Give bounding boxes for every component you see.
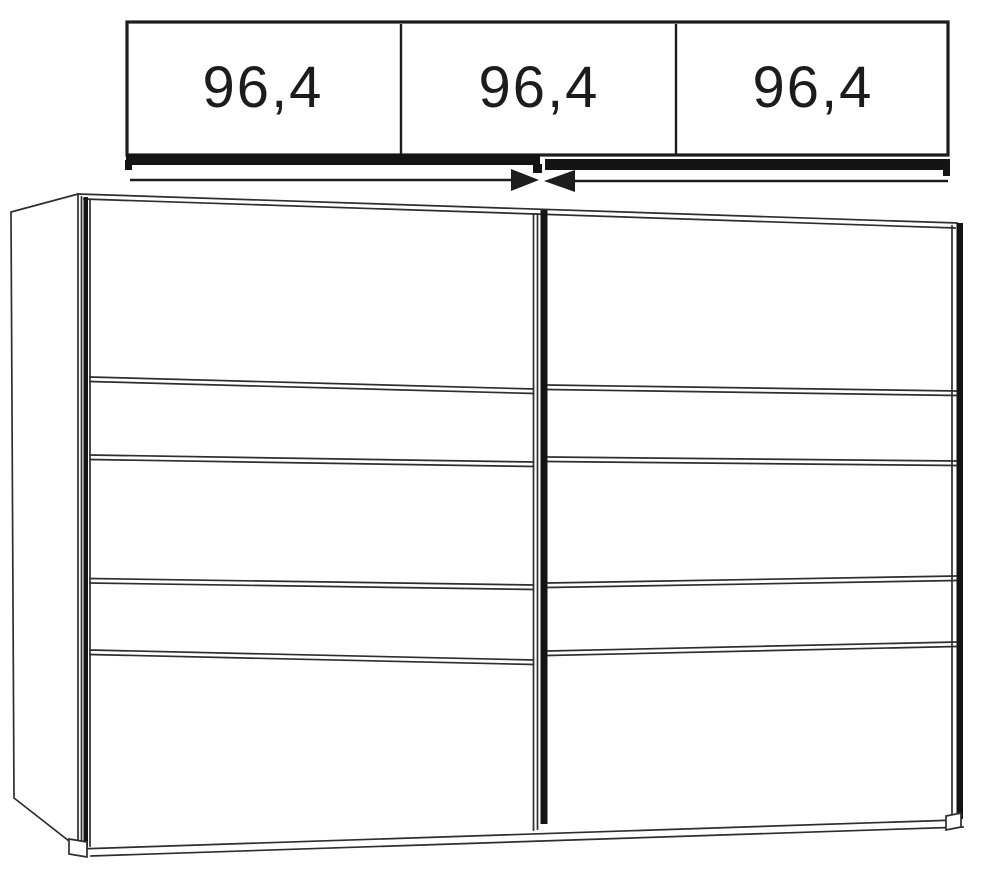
wardrobe-top-edge	[78, 194, 957, 228]
track-bar-junction-dot	[533, 164, 542, 173]
dimension-label-left: 96,4	[203, 59, 324, 117]
arrow-left-icon	[544, 170, 948, 192]
dimension-label-middle: 96,4	[479, 59, 600, 117]
track-bar-left-end-nub	[125, 160, 132, 170]
arrow-right-icon	[130, 169, 539, 191]
wardrobe-right-door	[541, 210, 964, 824]
left-foot	[69, 839, 87, 857]
track-bar-right	[545, 159, 950, 170]
left-door-handle-profile	[84, 197, 89, 847]
right-door-left-handle-profile	[541, 210, 548, 824]
track-bar-left	[126, 154, 540, 165]
right-foot	[946, 813, 961, 830]
wardrobe-left-door	[84, 197, 538, 847]
wardrobe-dimension-diagram: 96,4 96,4 96,4	[0, 0, 983, 875]
diagram-artwork	[0, 0, 983, 875]
dimension-label-right: 96,4	[753, 59, 874, 117]
wardrobe-side-panel	[11, 194, 82, 848]
wardrobe-base	[78, 820, 963, 856]
door-track-bars	[125, 154, 950, 176]
right-door-right-handle-profile	[957, 223, 964, 819]
track-bar-right-end-nub	[943, 166, 950, 176]
wardrobe-drawing	[11, 194, 963, 857]
